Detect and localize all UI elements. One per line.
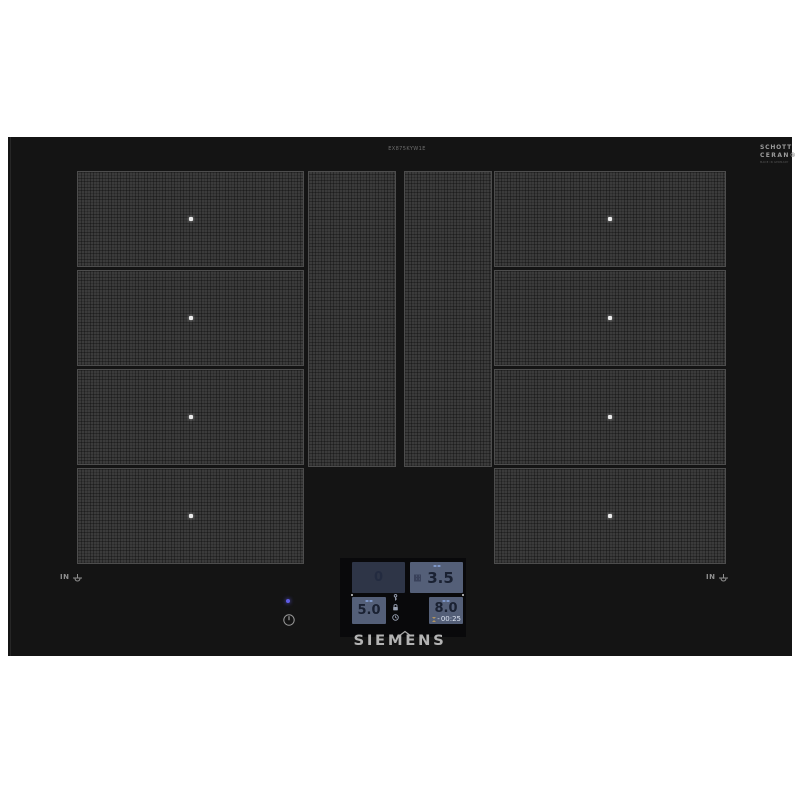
zone-power-display-top-left[interactable]: 0 (352, 562, 405, 593)
zone-center-dot (608, 316, 612, 320)
display-divider-dot (462, 594, 464, 596)
cooking-zone-right-3 (494, 369, 726, 465)
cooking-zone-middle-right (404, 171, 492, 467)
cooking-zone-left-1 (77, 171, 304, 267)
zone-center-dot (189, 415, 193, 419)
zone-center-dot (189, 514, 193, 518)
pause-lock-icon (392, 604, 399, 611)
power-led (286, 599, 290, 603)
cooking-zone-right-1 (494, 171, 726, 267)
zone-power-display-top-right[interactable]: 3.5 (410, 562, 463, 593)
timer-prefix: - (437, 615, 440, 623)
zone-power-display-bottom-left[interactable]: 5.0 (352, 597, 386, 624)
cooking-zone-middle-left (308, 171, 396, 467)
cooking-zone-right-4 (494, 468, 726, 564)
key-lock-icon (392, 594, 399, 601)
touch-display: 0 3.5 5.0 (340, 558, 466, 637)
power-move-grid-icon (414, 574, 421, 581)
zone-center-dot (608, 217, 612, 221)
power-level-value: 8.0 (434, 601, 457, 616)
zone-center-dot (189, 217, 193, 221)
power-level-value: 0 (374, 570, 383, 585)
power-button[interactable] (282, 612, 296, 626)
zone-indicator-icon (366, 598, 373, 602)
display-status-icons (389, 594, 401, 621)
zone-center-dot (608, 514, 612, 518)
power-icon (282, 613, 296, 627)
timer-clock-icon (392, 614, 399, 621)
glass-edge-highlight (10, 137, 11, 656)
cooking-zone-left-2 (77, 270, 304, 366)
zone-power-display-bottom-right[interactable]: 8.0 -00:25 (429, 597, 463, 624)
open-menu-control[interactable] (397, 622, 413, 629)
cooking-zone-left-3 (77, 369, 304, 465)
siemens-logo: SIEMENS (0, 633, 800, 649)
zone-center-dot (189, 316, 193, 320)
induction-pan-icon (718, 572, 729, 582)
zone-indicator-icon (443, 598, 450, 602)
model-number-text: EX875KYW1E (385, 146, 429, 152)
cooktop-glass: EX875KYW1E SCHOTT CERAN® MADE IN GERMANY… (8, 137, 792, 656)
timer-value: 00:25 (441, 615, 461, 623)
in-text: IN (60, 573, 69, 581)
zone-indicator-icon (433, 563, 440, 567)
schott-line3: MADE IN GERMANY (760, 161, 792, 164)
timer-hourglass-icon (432, 617, 436, 622)
induction-marking-left: IN (60, 571, 83, 583)
power-level-value: 5.0 (357, 603, 380, 618)
cooking-zone-left-4 (77, 468, 304, 564)
schott-line1: SCHOTT (760, 144, 792, 152)
induction-marking-right: IN (706, 571, 729, 583)
induction-pan-icon (72, 572, 83, 582)
in-text: IN (706, 573, 715, 581)
zone-center-dot (608, 415, 612, 419)
zone-timer: -00:25 (432, 615, 461, 623)
schott-ceran-logo: SCHOTT CERAN® MADE IN GERMANY (760, 144, 792, 164)
power-level-value: 3.5 (427, 569, 454, 587)
schott-line2: CERAN® (760, 152, 792, 160)
display-divider-dot (351, 594, 353, 596)
cooking-zone-right-2 (494, 270, 726, 366)
